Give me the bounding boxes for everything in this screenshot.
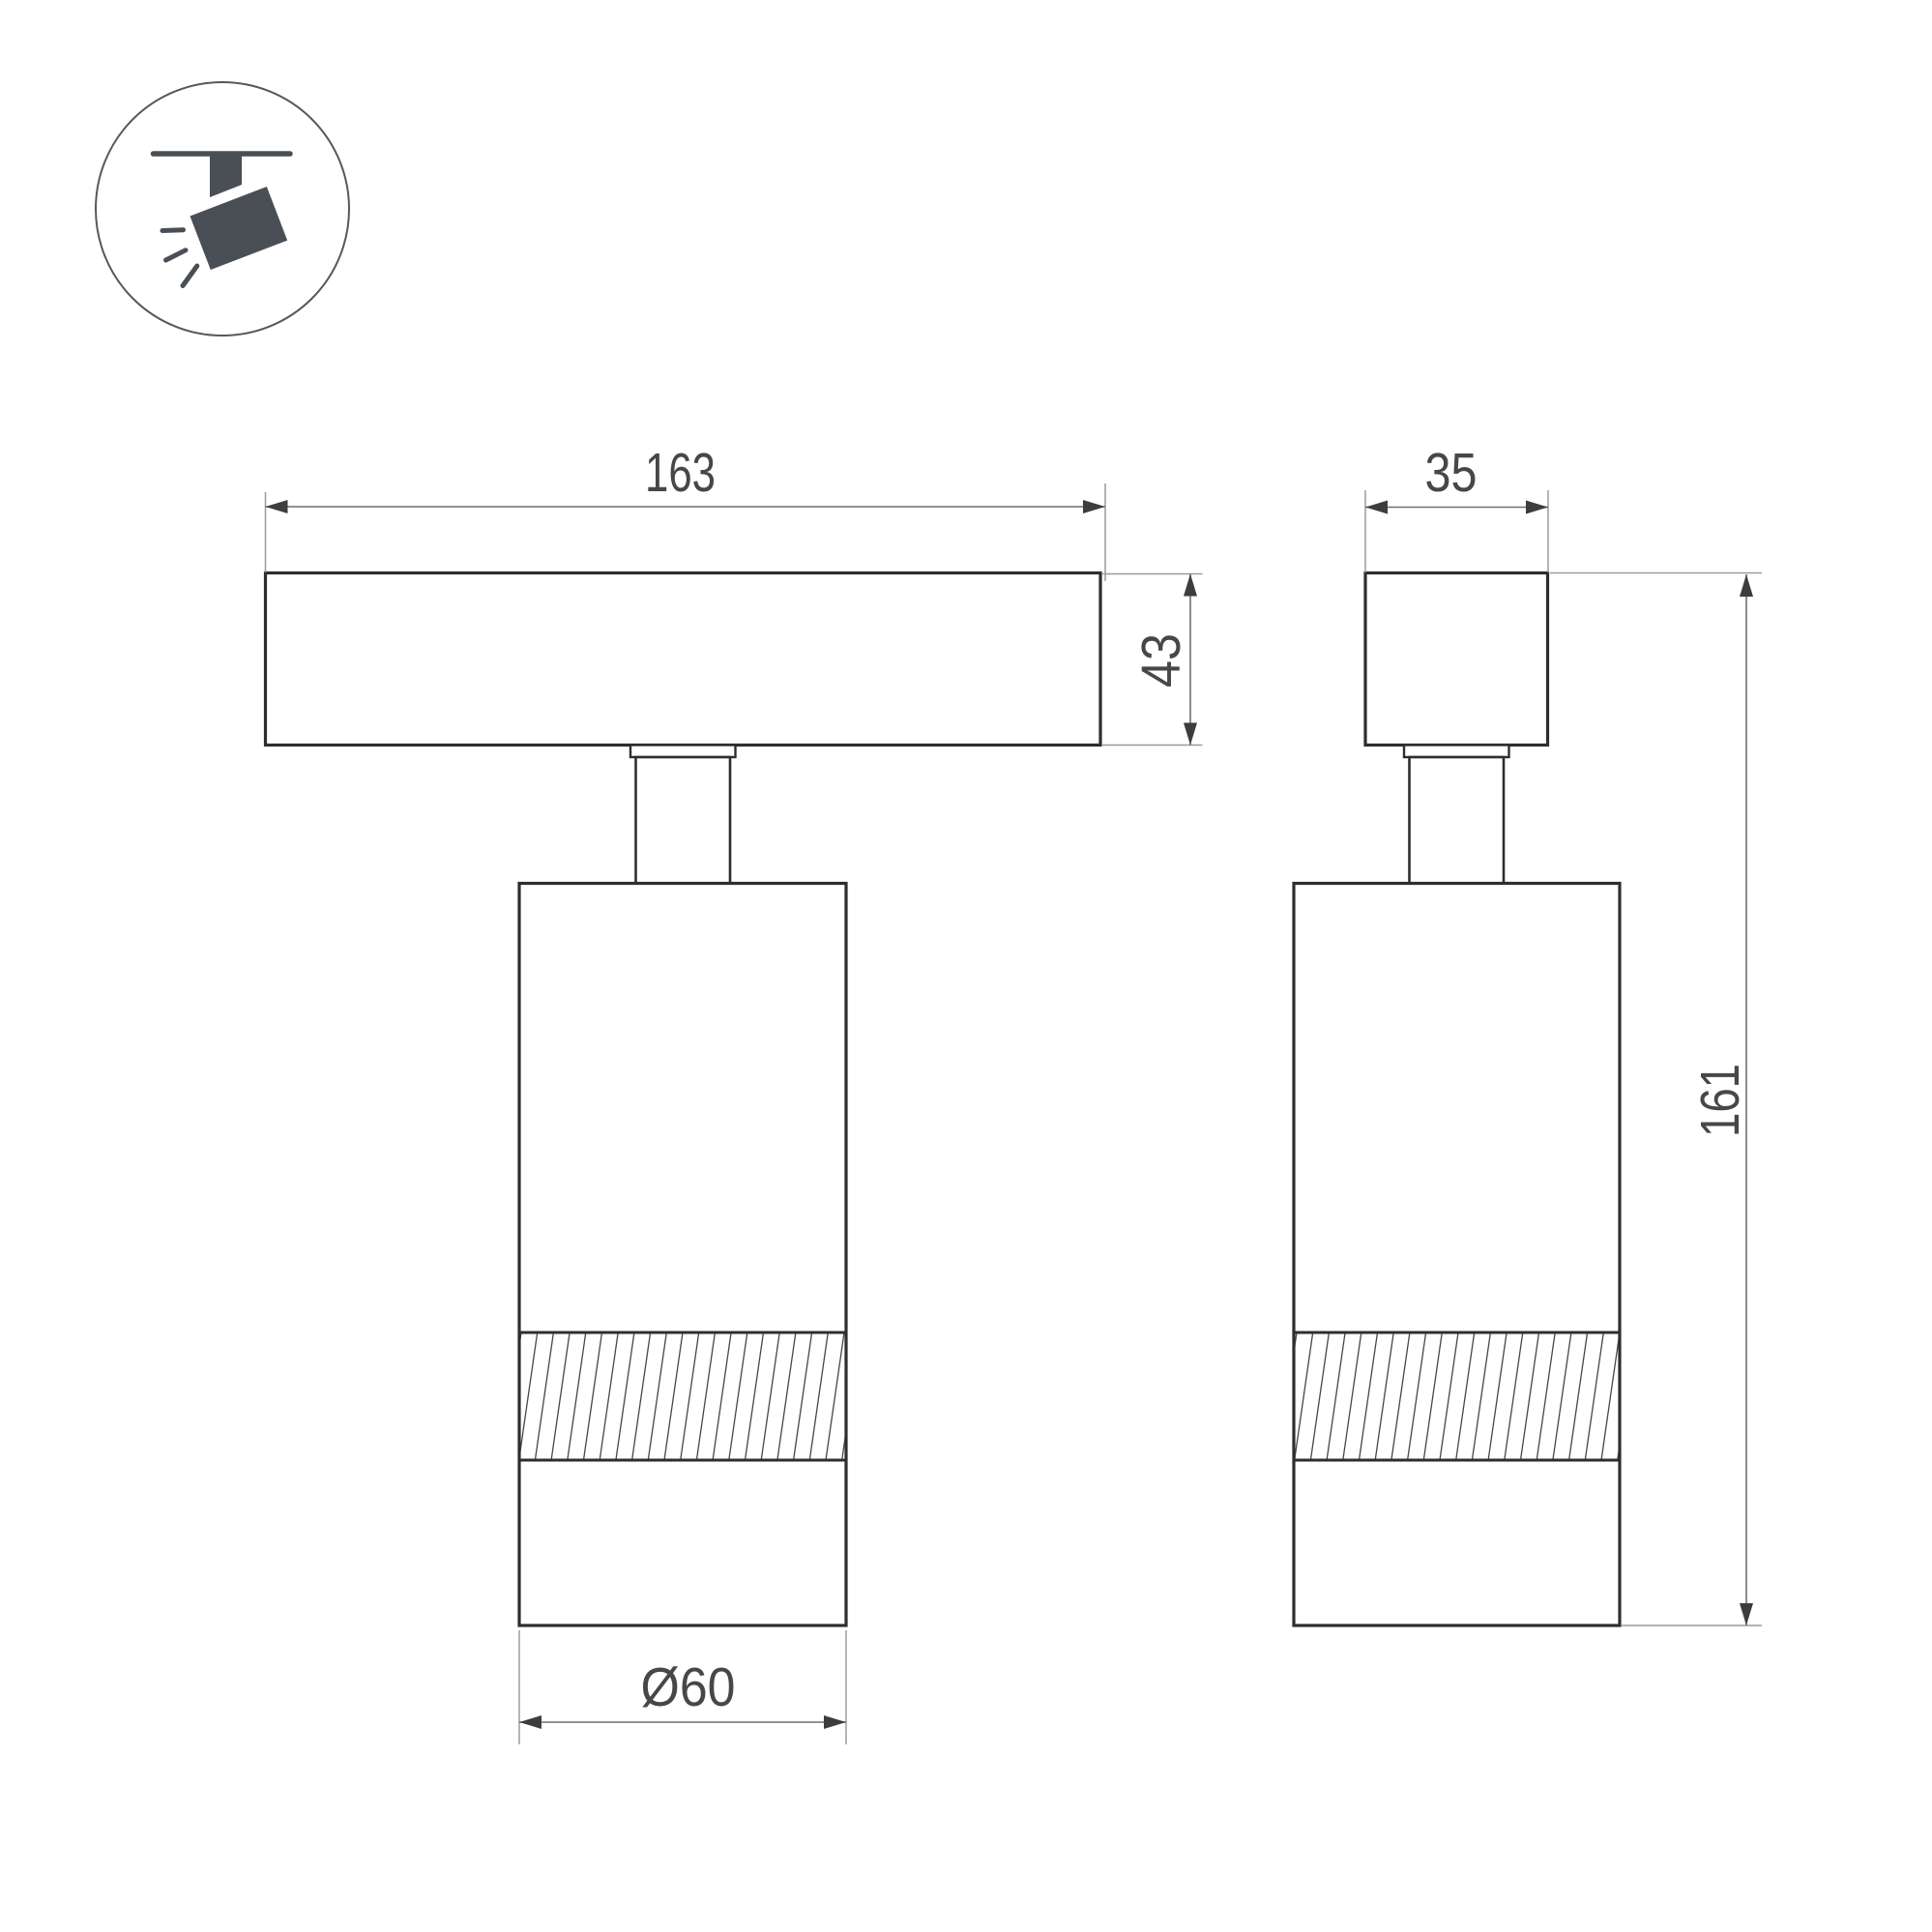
svg-text:43: 43 — [1130, 633, 1192, 688]
svg-text:161: 161 — [1689, 1064, 1751, 1137]
svg-text:163: 163 — [645, 442, 716, 504]
svg-text:Ø60: Ø60 — [641, 1656, 736, 1718]
svg-text:35: 35 — [1425, 442, 1478, 504]
